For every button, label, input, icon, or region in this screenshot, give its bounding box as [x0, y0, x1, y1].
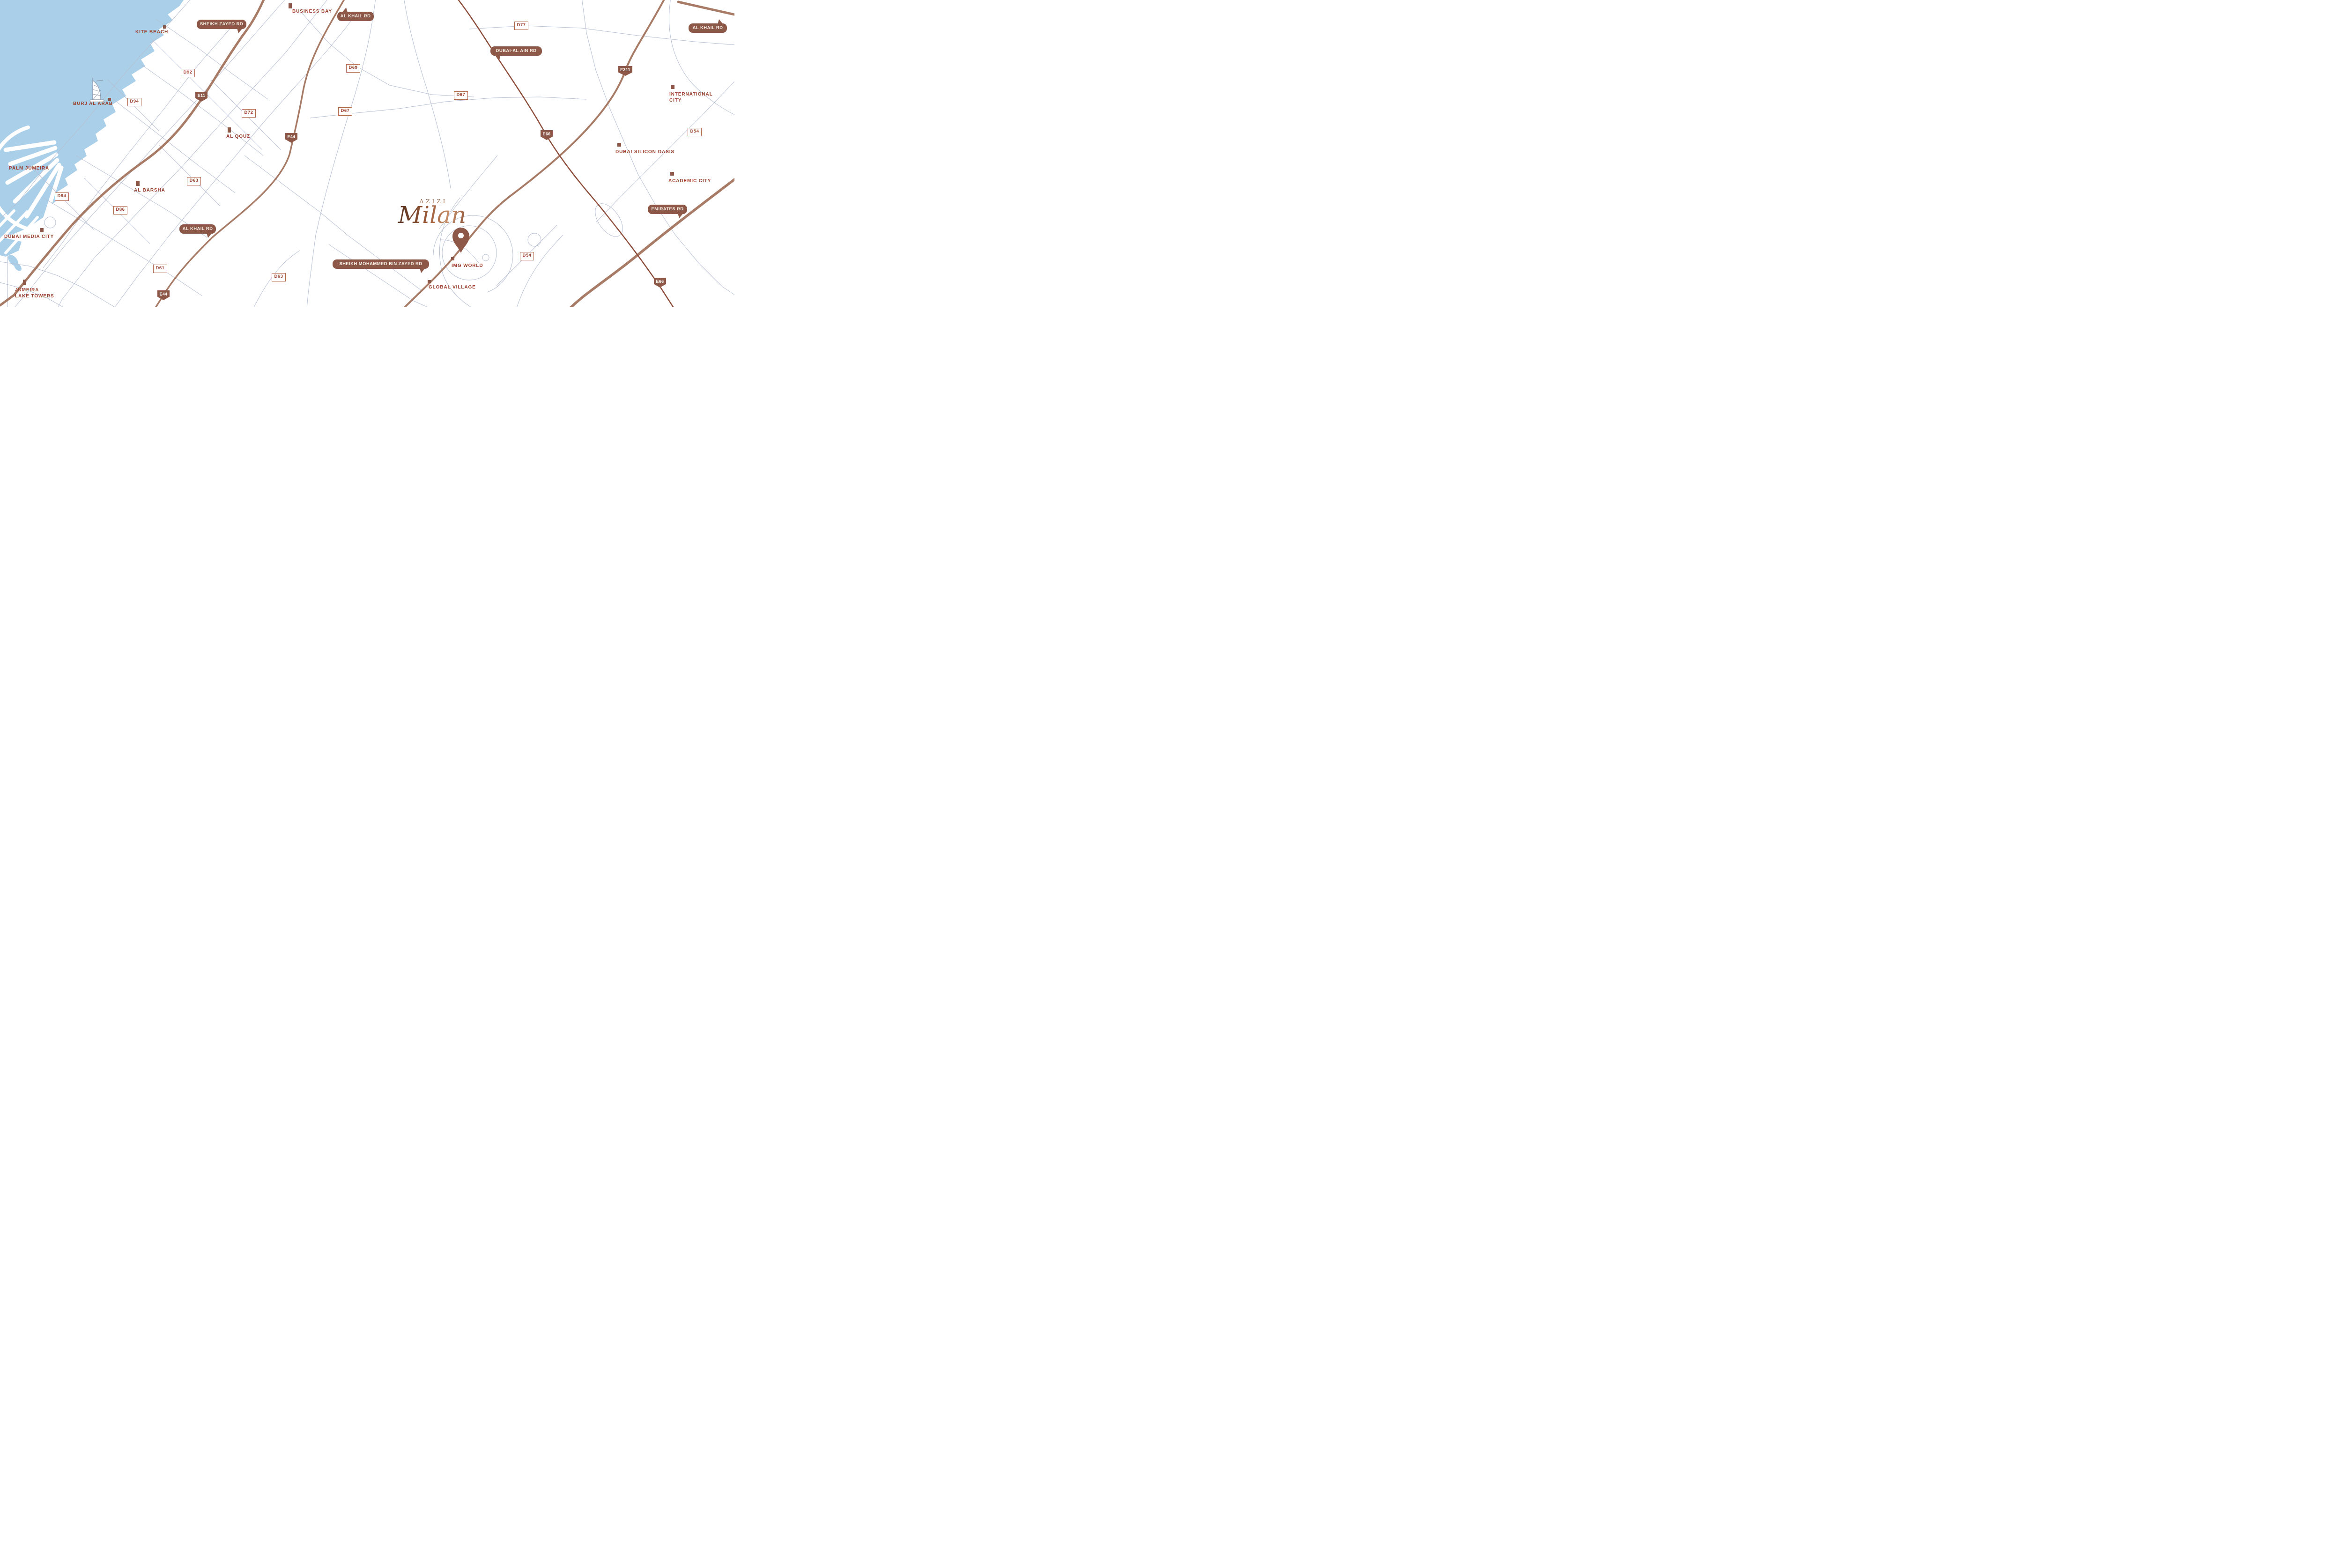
place-label: DUBAI SILICON OASIS	[615, 149, 674, 155]
place-marker-icon	[451, 257, 454, 260]
logo-name: Milan	[393, 203, 471, 227]
azizi-milan-logo: AZIZI Milan	[393, 198, 471, 227]
place-marker-icon	[428, 280, 431, 283]
road-emirates-rd	[569, 178, 734, 307]
place-marker-icon	[617, 143, 621, 147]
place-marker-icon	[163, 25, 166, 29]
place-marker-icon	[228, 127, 231, 133]
route-box-badge: D63	[187, 177, 201, 185]
route-box-badge: D72	[242, 109, 256, 118]
place-marker-icon	[108, 98, 111, 101]
route-box-badge: D77	[514, 22, 528, 30]
road-name-badge: AL KHAIL RD	[337, 12, 374, 21]
water-sea	[0, 0, 184, 273]
route-box-badge: D54	[688, 128, 702, 136]
place-marker-icon	[136, 181, 140, 186]
place-label: GLOBAL VILLAGE	[429, 285, 476, 291]
route-box-badge: D67	[454, 91, 468, 100]
road-top-right-stub	[678, 2, 734, 15]
place-marker-icon	[23, 280, 26, 285]
road-name-badge: DUBAI-AL AIN RD	[490, 46, 542, 56]
route-box-badge: D69	[346, 64, 360, 73]
place-label: INTERNATIONAL CITY	[669, 92, 713, 104]
place-marker-icon	[671, 85, 674, 89]
route-box-badge: D92	[181, 69, 195, 77]
route-box-badge: D67	[338, 107, 352, 116]
road-name-badge: AL KHAIL RD	[179, 224, 216, 234]
dubai-location-map: AZIZI Milan SHEIKH ZAYED RDAL KHAIL RDDU…	[0, 0, 734, 307]
road-name-badge: SHEIKH MOHAMMED BIN ZAYED RD	[333, 259, 429, 269]
road-name-badge: SHEIKH ZAYED RD	[197, 20, 246, 29]
place-marker-icon	[670, 172, 674, 176]
place-marker-icon	[289, 3, 292, 8]
route-box-badge: D61	[153, 265, 167, 273]
place-label: BUSINESS BAY	[292, 9, 332, 15]
place-label: JUMEIRA LAKE TOWERS	[15, 288, 54, 299]
route-box-badge: D86	[113, 206, 127, 214]
road-name-badge: EMIRATES RD	[648, 205, 687, 214]
place-label: IMG WORLD	[452, 263, 483, 269]
place-label: KITE BEACH	[135, 30, 168, 36]
place-label: PALM JUMEIRA	[9, 166, 49, 172]
route-box-badge: D54	[520, 252, 534, 260]
route-box-badge: D63	[272, 273, 286, 281]
place-label: AL BARSHA	[134, 188, 165, 194]
location-pin-icon	[452, 228, 469, 253]
place-label: AL QOUZ	[226, 134, 250, 140]
place-label: ACADEMIC CITY	[668, 178, 711, 185]
place-label: BURJ AL ARAB	[73, 101, 113, 107]
place-label: DUBAI MEDIA CITY	[4, 234, 54, 240]
route-box-badge: D94	[127, 98, 141, 106]
place-marker-icon	[40, 228, 44, 232]
route-box-badge: D94	[55, 192, 69, 201]
road-name-badge: AL KHAIL RD	[689, 23, 727, 33]
